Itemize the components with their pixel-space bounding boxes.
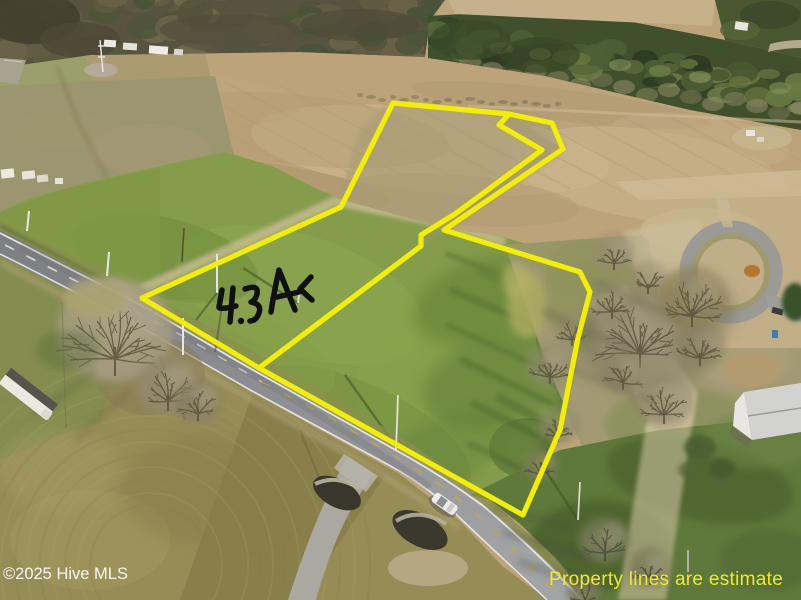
svg-text:©2025 Hive MLS: ©2025 Hive MLS	[3, 565, 128, 583]
svg-text:Property lines are estimate: Property lines are estimate	[549, 569, 783, 590]
